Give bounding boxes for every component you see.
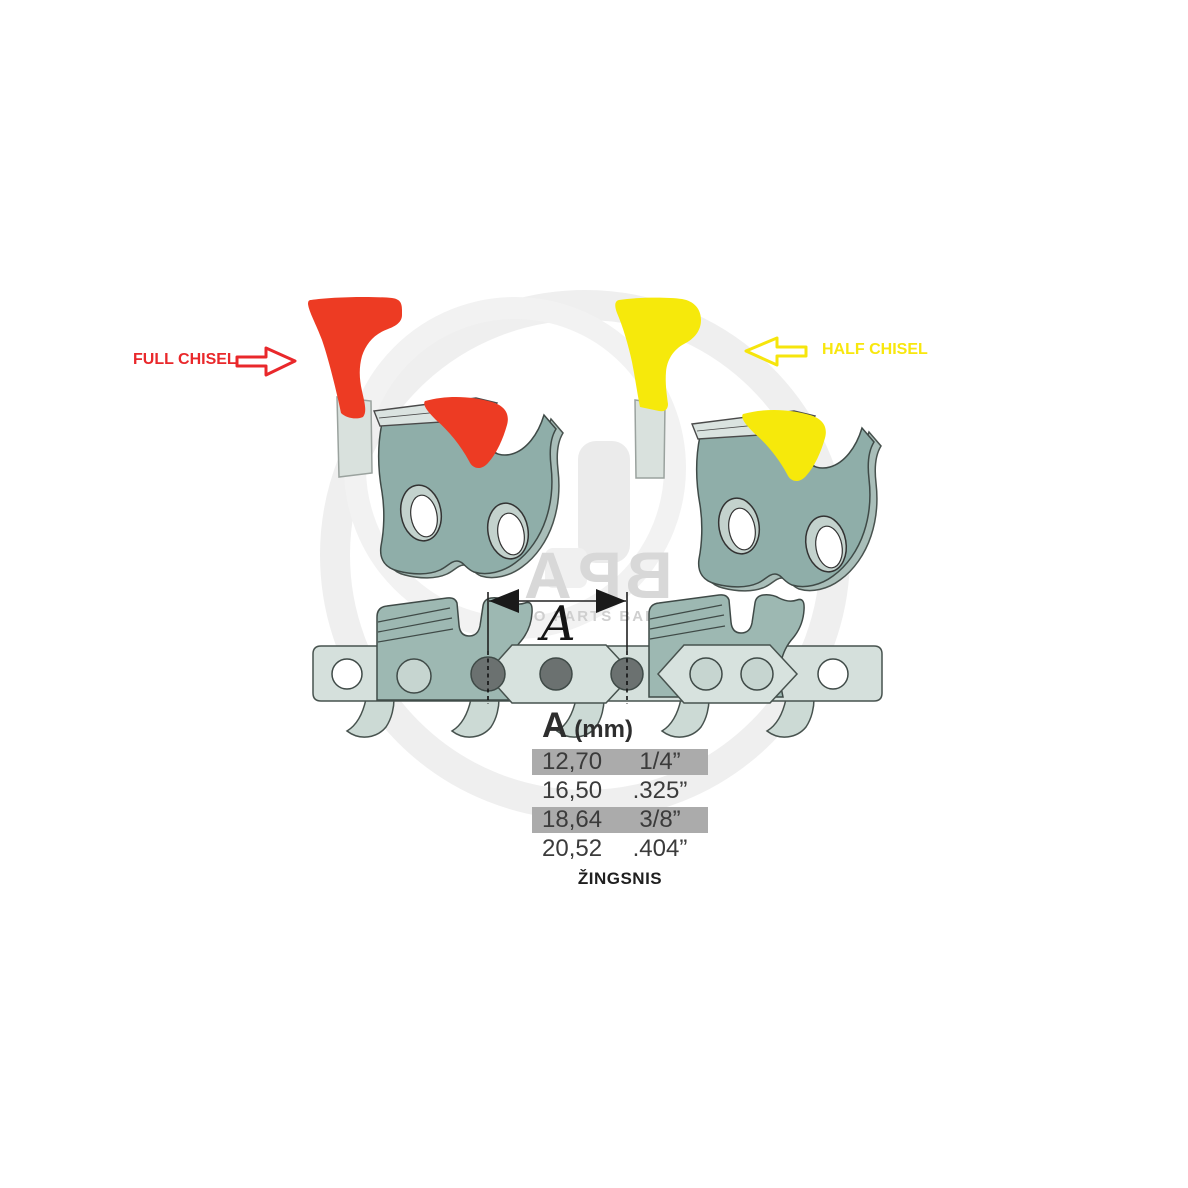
pitch-table-header: A (mm) <box>542 708 708 744</box>
drive-tooth <box>452 699 499 737</box>
full-chisel-cutter-shape <box>308 297 402 418</box>
pitch-dimension-label: A <box>541 600 576 648</box>
pitch-inch-value: 3/8” <box>612 807 708 833</box>
pitch-mm-value: 16,50 <box>542 778 612 804</box>
pitch-table-header-letter: A <box>542 708 567 743</box>
drive-tooth <box>347 699 394 737</box>
half-chisel-cutter-link <box>692 410 881 591</box>
pitch-caption: ŽINGSNIS <box>532 869 708 889</box>
half-chisel-stem <box>635 400 665 478</box>
pitch-mm-value: 18,64 <box>542 807 612 833</box>
full-chisel-label: FULL CHISEL <box>133 351 237 369</box>
half-chisel-arrow-icon <box>746 338 806 365</box>
pitch-row: 12,70 1/4” <box>532 749 708 775</box>
pitch-row: 20,52 .404” <box>532 836 708 862</box>
half-chisel-label: HALF CHISEL <box>822 341 928 359</box>
pitch-table-header-unit: (mm) <box>574 716 633 744</box>
half-chisel-cutter-shape <box>615 298 701 412</box>
drive-tooth <box>767 699 814 737</box>
pitch-row: 18,64 3/8” <box>532 807 708 833</box>
link-hole <box>741 658 773 690</box>
end-hole <box>332 659 362 689</box>
end-hole <box>818 659 848 689</box>
product-diagram: APB AGRO PARTS BALTIJA <box>0 0 1188 1188</box>
hex-tie-strap <box>658 645 797 703</box>
pitch-mm-value: 12,70 <box>542 749 612 775</box>
chain-illustration <box>0 0 1188 1188</box>
link-hole <box>397 659 431 693</box>
pitch-inch-value: .404” <box>612 836 708 862</box>
pitch-inch-value: .325” <box>612 778 708 804</box>
rivet <box>540 658 572 690</box>
full-chisel-arrow-icon <box>237 348 295 375</box>
dimension-arrowhead-right <box>596 589 626 613</box>
full-chisel-cutter-link <box>374 397 563 578</box>
pitch-table: A (mm) 12,70 1/4” 16,50 .325” 18,64 3/8”… <box>532 708 708 889</box>
pitch-mm-value: 20,52 <box>542 836 612 862</box>
pitch-inch-value: 1/4” <box>612 749 708 775</box>
half-chisel-profile <box>615 298 701 478</box>
pitch-row: 16,50 .325” <box>532 778 708 804</box>
link-hole <box>690 658 722 690</box>
